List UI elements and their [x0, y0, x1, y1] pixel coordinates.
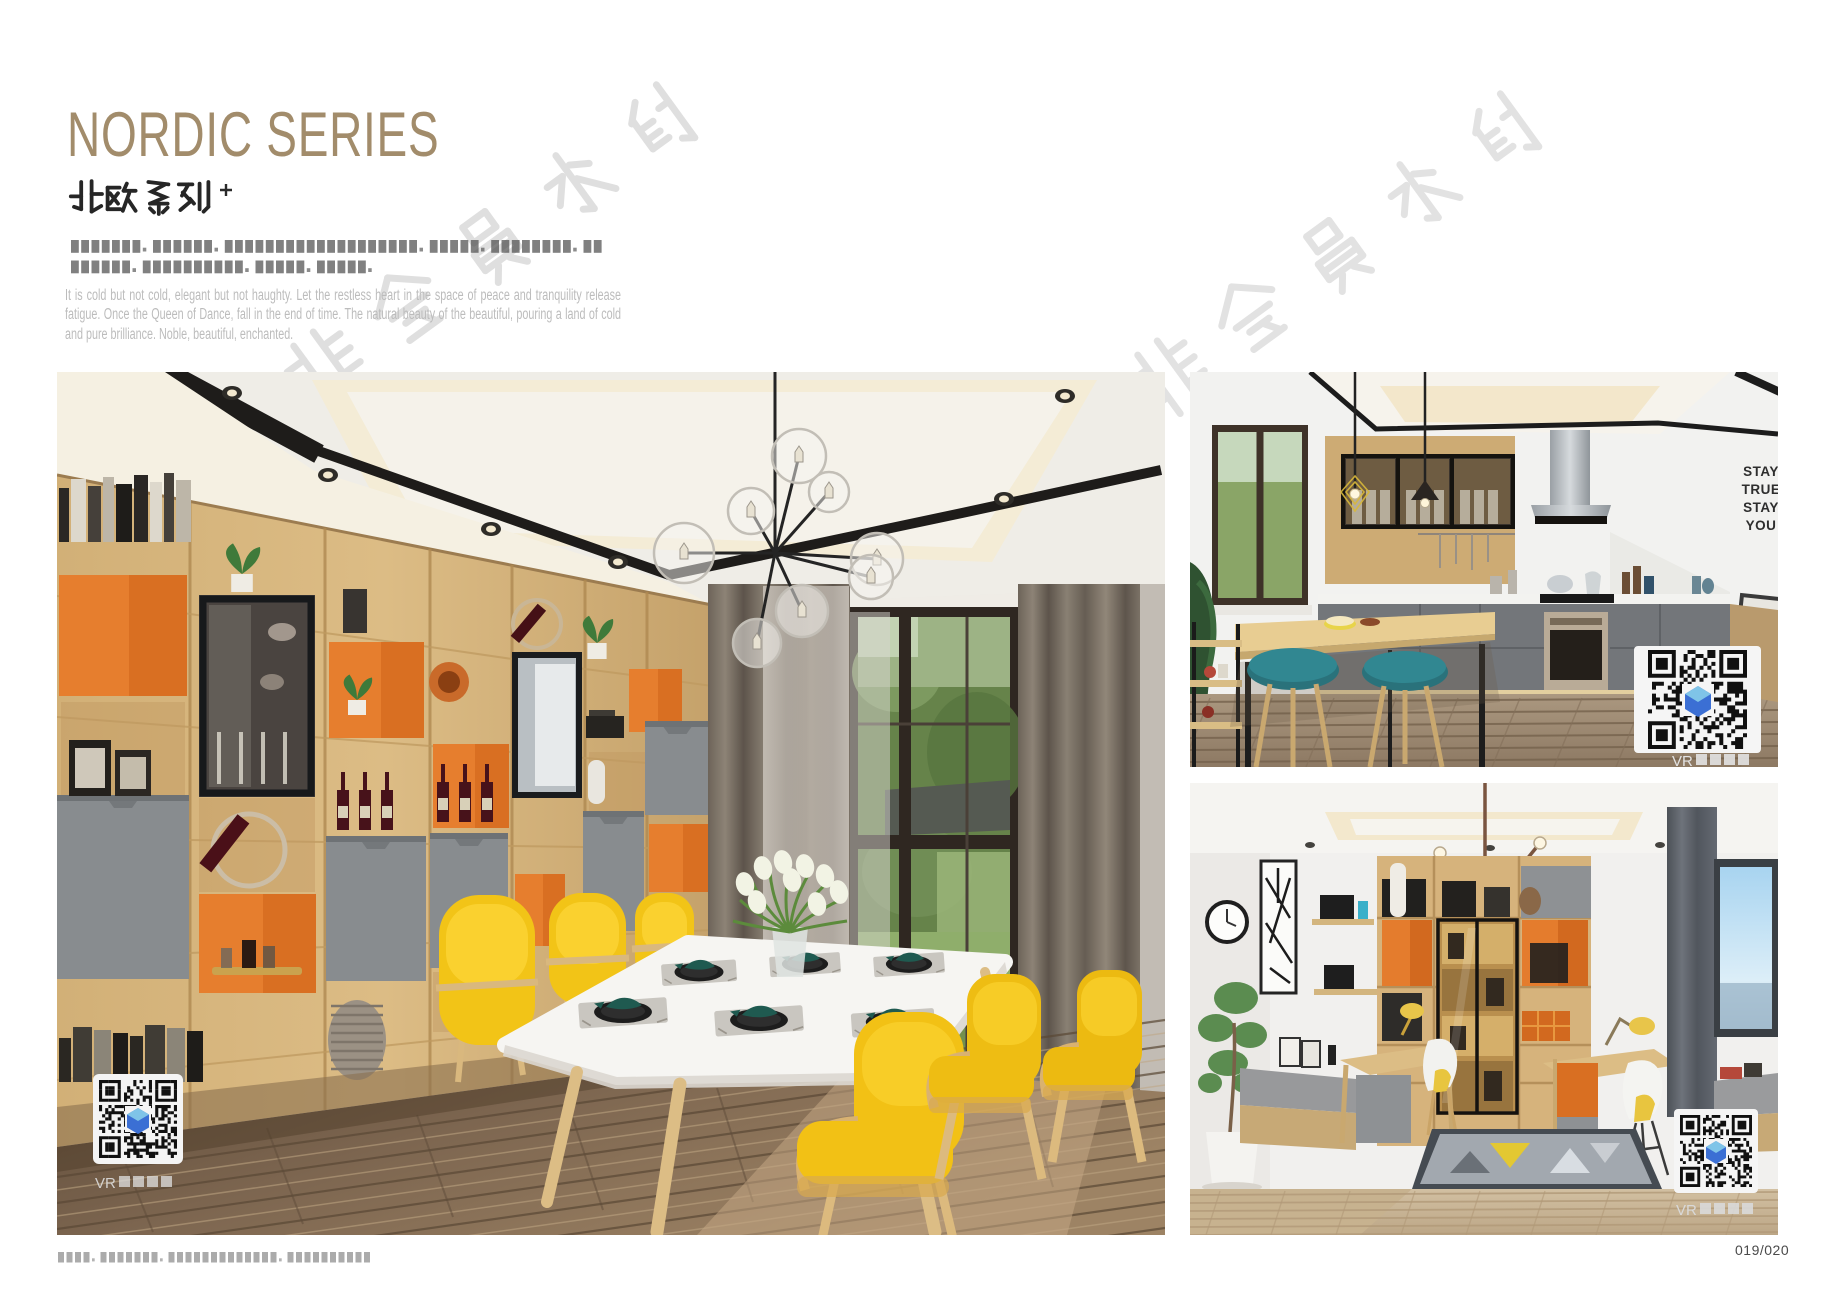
svg-text:VR: VR — [1676, 1202, 1697, 1219]
svg-text:YOU: YOU — [1746, 518, 1777, 533]
svg-text:STAY: STAY — [1743, 464, 1778, 479]
svg-text:TRUE: TRUE — [1742, 482, 1778, 497]
svg-text:STAY: STAY — [1743, 500, 1778, 515]
svg-text:VR: VR — [1672, 753, 1693, 767]
svg-text:VR: VR — [95, 1175, 116, 1192]
